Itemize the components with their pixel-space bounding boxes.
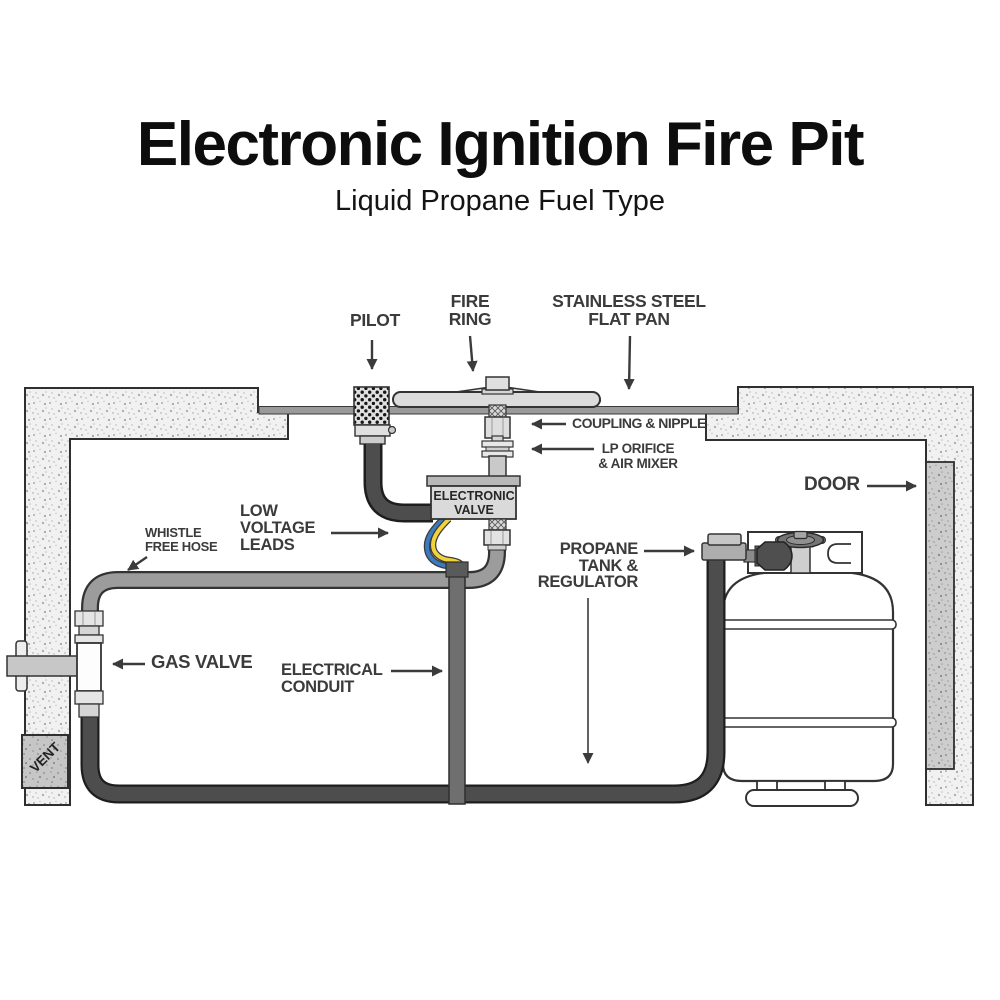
whistle-hose-label: WHISTLE FREE HOSE — [145, 526, 217, 553]
propane-tank-label: PROPANE TANK & REGULATOR — [514, 541, 638, 591]
tank-base-ring — [746, 790, 858, 806]
fire-ring-arrow — [470, 336, 473, 371]
coupling-nipple-label: COUPLING & NIPPLE — [572, 416, 706, 431]
pilot-burner — [354, 387, 389, 425]
coupling — [485, 417, 510, 438]
lp-orifice-label: LP ORIFICE & AIR MIXER — [578, 441, 698, 471]
propane-tank — [720, 532, 896, 807]
door-label: DOOR — [804, 475, 860, 495]
low-voltage-label: LOW VOLTAGE LEADS — [240, 503, 315, 554]
fire-ring-label: FIRE RING — [428, 292, 512, 328]
lp-orifice-air-mixer — [482, 441, 513, 457]
pilot-label: PILOT — [333, 311, 417, 329]
electrical-conduit-label: ELECTRICAL CONDUIT — [281, 662, 383, 696]
valve-key-bar — [7, 656, 78, 676]
page-subtitle: Liquid Propane Fuel Type — [0, 185, 1000, 218]
gas-valve-label: GAS VALVE — [151, 652, 252, 671]
fire-ring-center-fitting — [482, 377, 513, 394]
pilot-assembly — [354, 387, 396, 444]
electronic-valve-label: ELECTRONIC VALVE — [430, 489, 518, 517]
nipple — [489, 405, 506, 418]
burner-pipe-assembly — [482, 405, 513, 479]
flat-pan-arrow — [629, 336, 630, 389]
electrical-conduit-pipe — [446, 562, 468, 804]
main-gas-hose — [90, 558, 716, 794]
gas-valve-body — [77, 643, 101, 691]
page-title: Electronic Ignition Fire Pit — [0, 109, 1000, 180]
flat-pan-label: STAINLESS STEEL FLAT PAN — [538, 292, 720, 328]
door-panel — [926, 462, 954, 769]
whistle-hose-arrow — [128, 557, 147, 570]
fire-pit-diagram: Electronic Ignition Fire Pit Liquid Prop… — [0, 0, 1000, 1000]
pilot-hose — [373, 444, 433, 513]
